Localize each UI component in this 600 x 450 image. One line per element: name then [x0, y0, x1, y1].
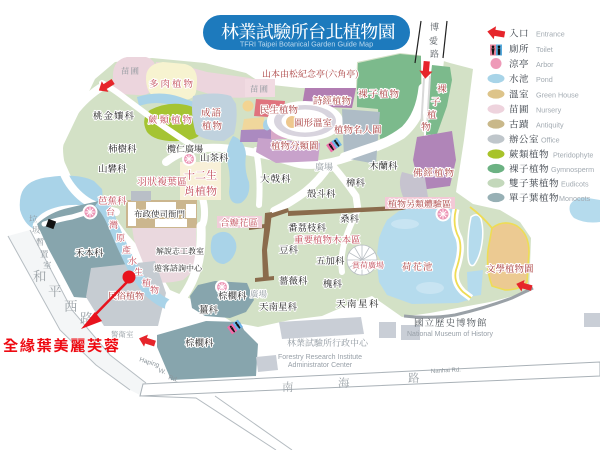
svg-text:Administrator Center: Administrator Center — [288, 362, 353, 369]
svg-text:Pond: Pond — [536, 75, 553, 84]
svg-text:Monocots: Monocots — [559, 194, 591, 203]
svg-text:Toilet: Toilet — [536, 45, 553, 54]
svg-text:Office: Office — [541, 136, 560, 145]
svg-text:Arbor: Arbor — [536, 60, 554, 69]
svg-text:Green House: Green House — [536, 91, 579, 100]
svg-text:National Museum of History: National Museum of History — [407, 331, 493, 338]
svg-text:Pteridophyte: Pteridophyte — [553, 151, 593, 160]
svg-text:Entrance: Entrance — [536, 30, 565, 39]
svg-text:TFRI Taipei Botanical Garden G: TFRI Taipei Botanical Garden Guide Map — [240, 40, 373, 49]
svg-text:Forestry Research Institute: Forestry Research Institute — [278, 354, 362, 361]
svg-text:Gymnosperm: Gymnosperm — [551, 165, 594, 174]
svg-text:Eudicots: Eudicots — [561, 180, 589, 189]
svg-text:Nursery: Nursery — [536, 106, 562, 115]
svg-text:Antiquity: Antiquity — [536, 121, 564, 130]
